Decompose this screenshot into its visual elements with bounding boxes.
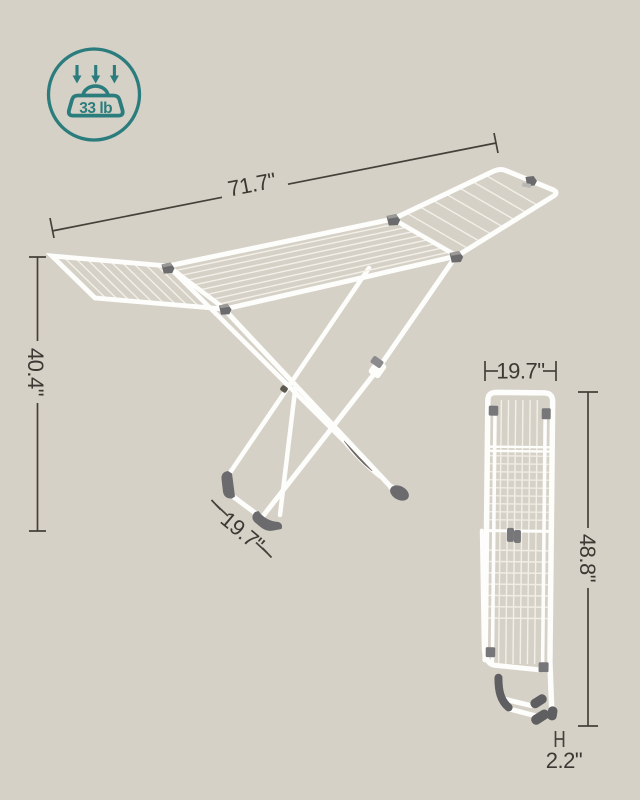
svg-text:33 lb: 33 lb [79, 100, 112, 117]
svg-text:40.4": 40.4" [23, 348, 48, 396]
svg-text:48.8": 48.8" [575, 534, 600, 582]
svg-text:19.7": 19.7" [496, 359, 544, 384]
svg-text:2.2": 2.2" [546, 748, 582, 773]
